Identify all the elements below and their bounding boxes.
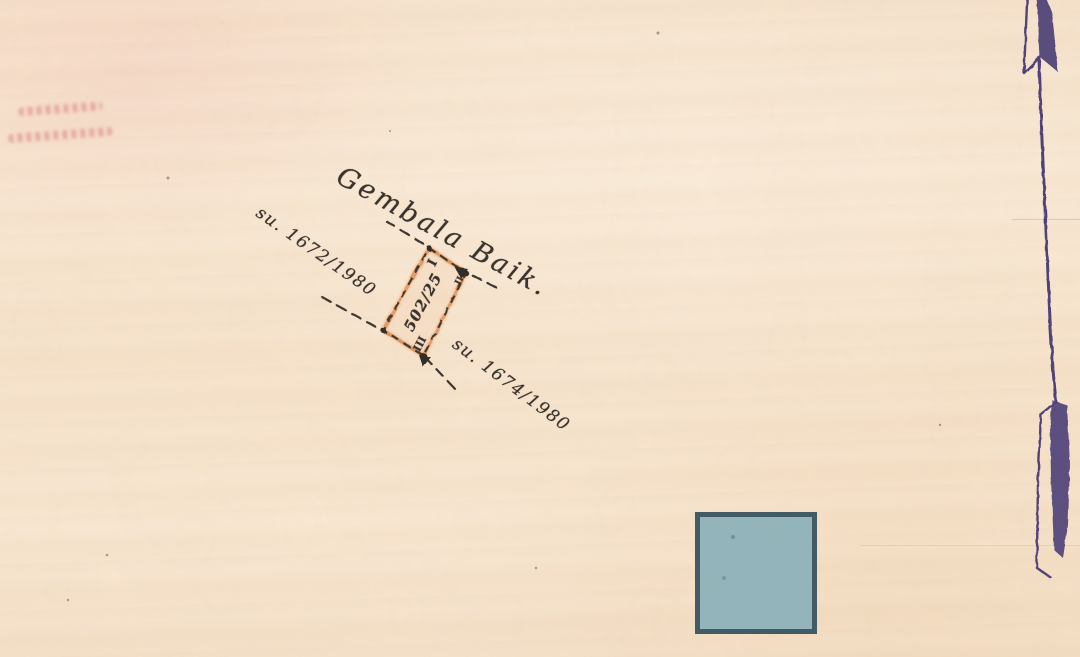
scanned-survey-document: { "sketch": { "road_name": "Gembala Baik… [0,0,1080,657]
paper-grain-overlay [0,0,1080,657]
survey-sketch-canvas [0,0,1080,657]
